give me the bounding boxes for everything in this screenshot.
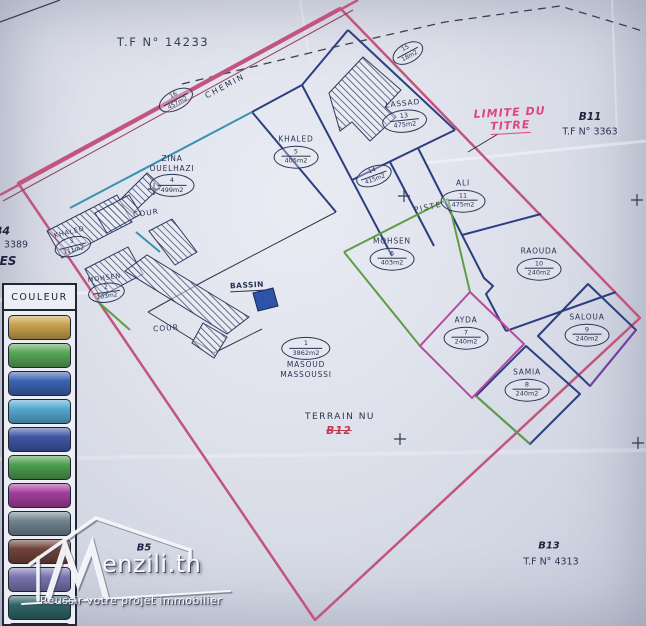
- plot-lines-navy: [252, 30, 636, 444]
- logo-slogan-text: Réussir votre projet immobilier: [40, 594, 222, 607]
- left-edge-partial-text: ES: [0, 254, 16, 268]
- legend-swatch: [8, 399, 71, 424]
- corner-line: [0, 0, 60, 22]
- plot-name2: OUELHAZI: [150, 165, 195, 174]
- plot-area: 240m2: [452, 337, 481, 346]
- plot-label-ali: ALI 11 475m2: [441, 180, 486, 213]
- limite-line2: TITRE: [490, 118, 531, 135]
- legend-swatch: [8, 371, 71, 396]
- plot-area: 103m2: [93, 290, 121, 302]
- plot-name: LASSAD: [385, 98, 421, 110]
- parcel-b11-tf: T.F N° 3363: [562, 127, 617, 138]
- legend-swatch: [8, 455, 71, 480]
- hatched-buildings: [47, 57, 401, 358]
- plot-name: MASOUD: [287, 361, 325, 370]
- plot-number: 10: [535, 260, 543, 267]
- plot-area: 475m2: [390, 118, 420, 129]
- scanned-land-plan-photo: T.F N° 14233 CHEMIN LIMITE DU TITRE B11 …: [0, 0, 646, 626]
- plot-label-zina-ouelhazi: ZINA OUELHAZI 4 499m2: [150, 155, 195, 197]
- plot-name: KHALED: [278, 136, 313, 145]
- plot-area: 403m2: [378, 258, 407, 267]
- plot-label-masoud-massoussi: 1 3862m2 MASOUD MASSOUSSI: [280, 337, 331, 379]
- plot-label-ayda: AYDA 7 240m2: [444, 317, 489, 350]
- plot-area-ellipse: 1 3862m2: [281, 337, 330, 360]
- plot-number: 13: [399, 112, 408, 119]
- plot-number: 11: [459, 192, 467, 199]
- plot-area-ellipse: 6 403m2: [370, 247, 415, 270]
- plot-number: 9: [585, 326, 589, 333]
- bassin-pool: [253, 288, 278, 311]
- plot-name: SALOUA: [569, 314, 604, 323]
- plot-name2: MASSOUSSI: [280, 371, 331, 380]
- legend-swatch: [8, 315, 71, 340]
- plot-number: 1: [304, 340, 308, 347]
- plot-label-lassad: LASSAD 13 475m2: [380, 97, 428, 134]
- b12-struck-label: B12: [326, 425, 352, 437]
- plot-name: ALI: [456, 180, 470, 189]
- plot-area: 240m2: [513, 389, 542, 398]
- plot-area-ellipse: 4 499m2: [150, 174, 195, 197]
- plot-number: 8: [525, 381, 529, 388]
- plot-number: 6: [390, 250, 394, 257]
- plot-label-raouda: RAOUDA 10 240m2: [517, 248, 562, 281]
- plot-name: RAOUDA: [521, 248, 558, 257]
- plot-name: ZINA: [161, 155, 182, 164]
- parcel-b11: B11: [579, 111, 602, 123]
- plot-label-mohsen-2: MOHSEN 2 103m2: [86, 272, 127, 305]
- plot-area: 3862m2: [289, 347, 322, 356]
- terrain-nu-label: TERRAIN NU: [305, 412, 375, 422]
- logo-brand-text: enzili.tn: [102, 550, 201, 578]
- plot-area: 475m2: [449, 200, 478, 209]
- parcel-b13-tf: T.F N° 4313: [523, 557, 578, 568]
- parcel-b4: B4: [0, 225, 10, 238]
- parcel-b13: B13: [538, 541, 560, 552]
- plot-number: 5: [294, 148, 298, 155]
- plot-area-ellipse: 8 240m2: [505, 378, 550, 401]
- plot-label-saloua: SALOUA 9 240m2: [565, 314, 610, 347]
- plot-number: 7: [464, 329, 468, 336]
- legend-swatch: [8, 343, 71, 368]
- plot-area: 240m2: [525, 268, 554, 277]
- plot-name: SAMIA: [513, 369, 541, 378]
- title-tf-main: T.F N° 14233: [117, 35, 209, 49]
- plot-area: 405m2: [282, 156, 311, 165]
- limite-leader-line: [468, 134, 498, 152]
- legend-swatch: [8, 483, 71, 508]
- plot-area: 499m2: [158, 185, 187, 194]
- plot-area: 240m2: [573, 334, 602, 343]
- plot-number: 4: [170, 177, 174, 184]
- plot-area-ellipse: 13 475m2: [381, 107, 428, 135]
- plot-label-khaled-5: KHALED 5 405m2: [274, 136, 319, 169]
- limite-du-titre-label: LIMITE DU TITRE: [473, 104, 546, 136]
- plot-area-ellipse: 5 405m2: [274, 145, 319, 168]
- bassin-label: BASSIN: [230, 280, 265, 293]
- plot-area-ellipse: 11 475m2: [441, 189, 486, 212]
- legend-header: COULEUR: [4, 285, 75, 311]
- plot-label-mohsen-6: MOHSEN 6 403m2: [370, 238, 415, 271]
- plot-area-ellipse: 9 240m2: [565, 323, 610, 346]
- parcel-b4-tf: 3389: [4, 240, 28, 251]
- plot-number: 2: [104, 285, 109, 291]
- cour-label-2: COUR: [153, 323, 179, 334]
- menzili-watermark-logo: enzili.tn Réussir votre projet immobilie…: [18, 508, 250, 620]
- plot-label-samia: SAMIA 8 240m2: [505, 369, 550, 402]
- plot-area-ellipse: 10 240m2: [517, 257, 562, 280]
- plot-name: MOHSEN: [373, 238, 411, 247]
- legend-swatch: [8, 427, 71, 452]
- plot-number: 3: [69, 239, 74, 246]
- plot-name: AYDA: [454, 317, 477, 326]
- plot-area-ellipse: 7 240m2: [444, 326, 489, 349]
